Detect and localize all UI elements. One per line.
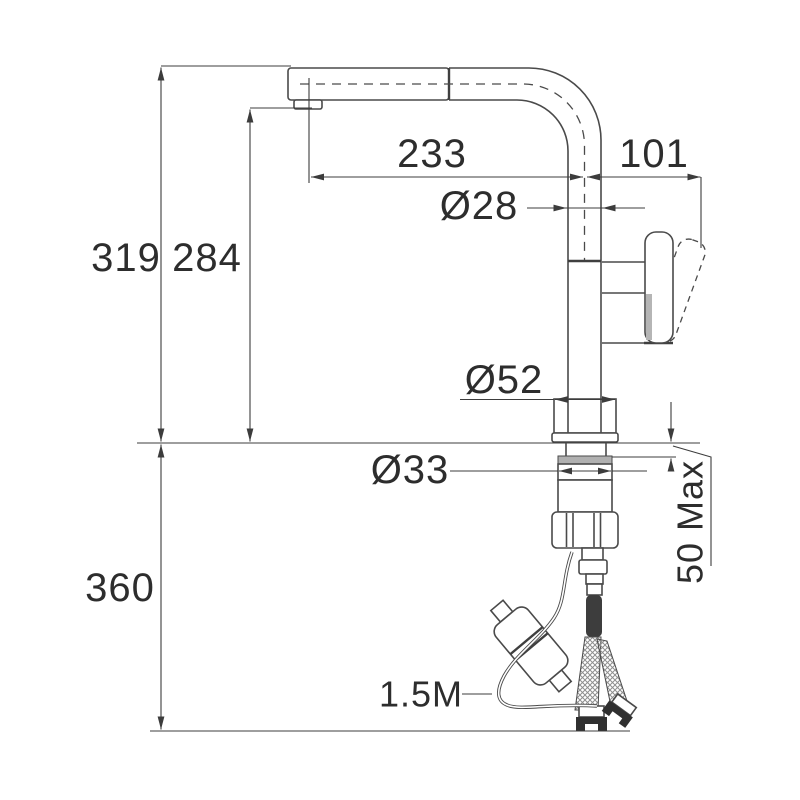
supply-hose-left [575, 637, 601, 710]
shank-body [558, 480, 612, 512]
braided-sleeve [586, 595, 602, 637]
technical-drawing-svg: 319 284 233 101 Ø28 [0, 0, 800, 800]
fitting-1 [582, 548, 603, 560]
dim-label-360: 360 [85, 566, 155, 610]
dim-label-hose: 1.5M [379, 674, 463, 715]
dim-label-233: 233 [397, 132, 467, 176]
fitting-3 [586, 574, 603, 584]
dim-label-d52: Ø52 [465, 358, 544, 402]
dimension-annotations: 319 284 233 101 Ø28 [85, 66, 711, 730]
dim-hose-length: 1.5M [379, 674, 492, 715]
dim-base-diameter: Ø52 [460, 358, 615, 402]
fitting-4 [587, 584, 602, 595]
dim-label-319: 319 [91, 236, 161, 280]
hose-connector-right [602, 692, 639, 728]
dim-spout-height: 284 [172, 108, 312, 442]
dim-tube-diameter: Ø28 [440, 184, 645, 228]
dim-label-101: 101 [619, 132, 689, 176]
faucet-dimension-drawing: 319 284 233 101 Ø28 [0, 0, 800, 800]
dim-label-d33: Ø33 [371, 448, 450, 492]
shank-collar [558, 464, 612, 480]
dim-label-50max: 50 Max [670, 460, 711, 584]
fitting-2 [579, 560, 607, 574]
dim-counter-thickness: 50 Max [612, 402, 711, 584]
dim-under-counter: 360 [85, 445, 161, 730]
mounting-nut [552, 512, 618, 548]
handle-shade [646, 294, 652, 340]
shank-washer [558, 456, 612, 464]
base-plate [552, 433, 618, 442]
dim-label-284: 284 [172, 236, 242, 280]
base-flange [554, 399, 616, 433]
dim-label-d28: Ø28 [440, 184, 519, 228]
hose-connector-left [576, 706, 607, 731]
dim-handle-reach: 101 [587, 132, 701, 248]
